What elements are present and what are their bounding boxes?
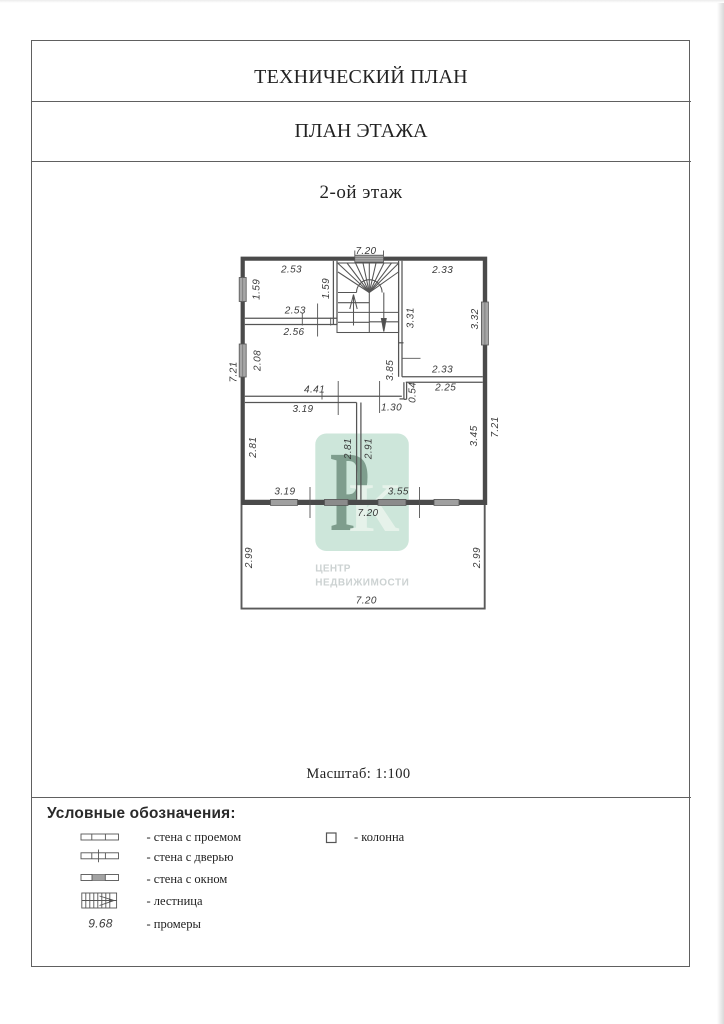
svg-text:2.56: 2.56 bbox=[282, 327, 304, 338]
svg-text:3.85: 3.85 bbox=[385, 360, 396, 381]
svg-text:9.68: 9.68 bbox=[88, 917, 113, 931]
svg-text:0.54: 0.54 bbox=[408, 382, 419, 403]
svg-text:2.81: 2.81 bbox=[343, 438, 354, 460]
svg-text:3.55: 3.55 bbox=[388, 487, 409, 498]
svg-text:1.59: 1.59 bbox=[251, 279, 262, 300]
svg-text:2.25: 2.25 bbox=[434, 383, 456, 394]
svg-text:7.21: 7.21 bbox=[490, 416, 501, 437]
svg-text:2.33: 2.33 bbox=[431, 265, 453, 276]
svg-text:2.99: 2.99 bbox=[472, 547, 483, 569]
svg-text:4.41: 4.41 bbox=[304, 384, 325, 395]
svg-text:2.81: 2.81 bbox=[248, 437, 259, 459]
svg-text:7.20: 7.20 bbox=[356, 596, 377, 607]
svg-text:2.08: 2.08 bbox=[252, 350, 263, 372]
svg-text:1.59: 1.59 bbox=[321, 278, 332, 299]
svg-text:2.33: 2.33 bbox=[431, 365, 453, 376]
svg-text:7.20: 7.20 bbox=[357, 508, 378, 519]
svg-text:1.30: 1.30 bbox=[381, 402, 402, 413]
svg-text:3.31: 3.31 bbox=[405, 307, 416, 328]
svg-text:3.19: 3.19 bbox=[274, 486, 295, 497]
svg-text:НЕДВИЖИМОСТИ: НЕДВИЖИМОСТИ bbox=[315, 578, 409, 589]
svg-text:2.53: 2.53 bbox=[284, 305, 306, 316]
svg-text:2.91: 2.91 bbox=[364, 438, 375, 460]
svg-text:3.32: 3.32 bbox=[470, 308, 481, 329]
svg-text:7.21: 7.21 bbox=[228, 361, 239, 382]
svg-text:7.20: 7.20 bbox=[355, 246, 376, 257]
svg-text:ЦЕНТР: ЦЕНТР bbox=[315, 564, 351, 575]
svg-text:3.19: 3.19 bbox=[292, 404, 313, 415]
svg-text:3.45: 3.45 bbox=[469, 425, 480, 446]
svg-text:2.53: 2.53 bbox=[280, 264, 302, 275]
svg-text:2.99: 2.99 bbox=[244, 547, 255, 569]
